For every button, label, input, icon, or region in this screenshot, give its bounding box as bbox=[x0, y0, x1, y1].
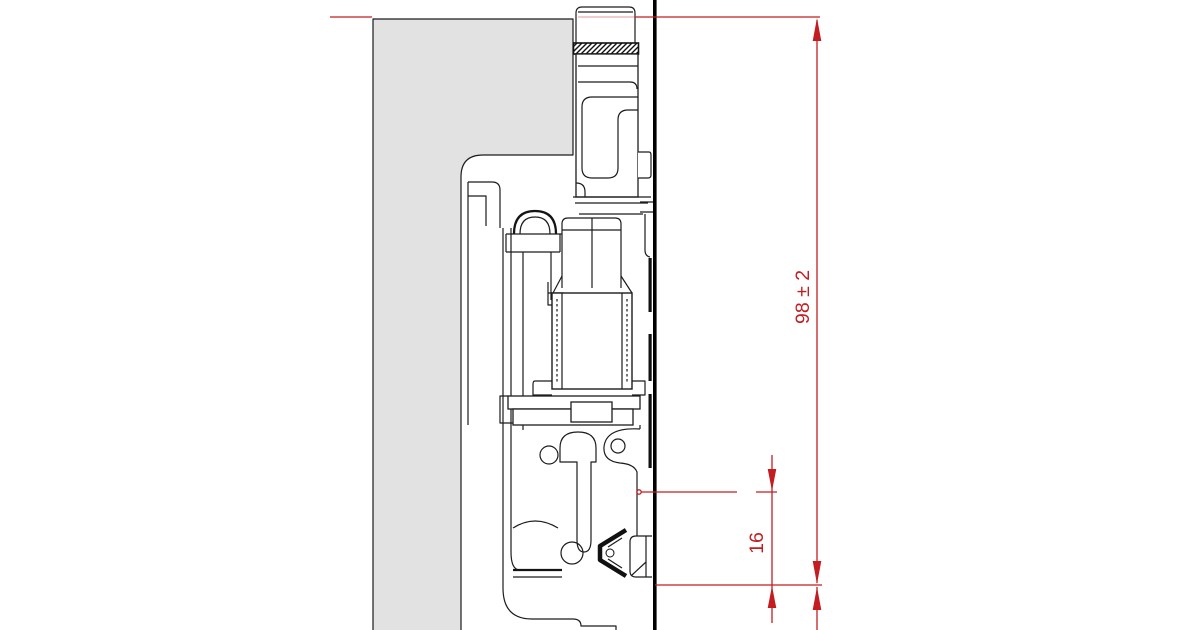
dimension-16: 16 bbox=[637, 455, 822, 623]
arrow-up-icon bbox=[813, 587, 822, 610]
right-tab bbox=[630, 536, 652, 577]
hatch-band-icon bbox=[574, 43, 639, 54]
coupling-cylinder bbox=[548, 218, 632, 305]
dimension-98: 98 ± 2 bbox=[792, 18, 821, 630]
base-plates bbox=[500, 396, 640, 425]
side-panel bbox=[373, 19, 573, 630]
arrow-down-icon bbox=[813, 561, 822, 584]
roller-icon bbox=[561, 542, 583, 564]
wall-line bbox=[653, 0, 657, 630]
dimension-16-label: 16 bbox=[746, 532, 768, 554]
arrow-up-icon bbox=[813, 18, 822, 41]
side-panel-fill bbox=[373, 19, 573, 630]
threaded-block bbox=[533, 293, 645, 395]
drawing-canvas: 98 ± 2 16 bbox=[0, 0, 1200, 630]
mounting-plate-bars bbox=[645, 214, 652, 468]
drawer-slide-profile bbox=[468, 182, 652, 630]
dimension-98-label: 98 ± 2 bbox=[792, 270, 814, 324]
arrow-up-icon bbox=[768, 586, 777, 608]
front-hook-dome bbox=[506, 211, 562, 252]
arrow-down-icon bbox=[768, 469, 777, 491]
mounting-pin bbox=[573, 7, 653, 214]
